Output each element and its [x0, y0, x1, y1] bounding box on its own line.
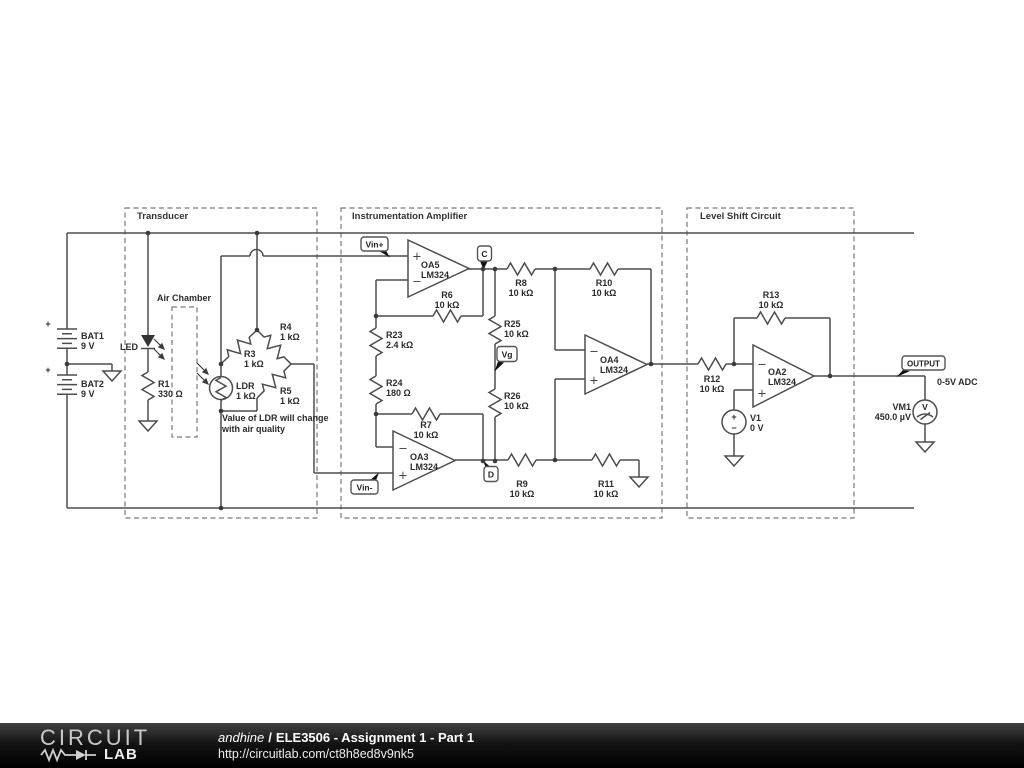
r5-value: 1 kΩ — [280, 396, 300, 406]
output-label: OUTPUT — [907, 360, 940, 369]
ldr-name: LDR — [236, 381, 255, 391]
vm1-value: 450.0 µV — [875, 412, 911, 422]
resistor-r1[interactable]: R1 330 Ω — [142, 372, 183, 400]
node-c-label: C — [481, 249, 487, 259]
v1-name: V1 — [750, 413, 761, 423]
bat1-name: BAT1 — [81, 331, 104, 341]
ground-symbol-vm1 — [916, 442, 934, 452]
r23-value: 2.4 kΩ — [386, 340, 413, 350]
flag-vin-plus[interactable]: Vin+ — [361, 237, 390, 258]
oa2-name: OA2 — [768, 367, 787, 377]
r26-name: R26 — [504, 391, 521, 401]
resistor-r7[interactable]: R7 10 kΩ — [412, 408, 440, 440]
bat2-name: BAT2 — [81, 379, 104, 389]
oa4-value: LM324 — [600, 365, 628, 375]
transducer-title: Transducer — [137, 211, 189, 222]
r3-name: R3 — [244, 349, 256, 359]
bat2-plus-sign: + — [45, 365, 50, 375]
ldr-note-line1: Value of LDR will change — [222, 413, 329, 423]
schematic-canvas: Transducer Instrumentation Amplifier Lev… — [0, 0, 1024, 723]
page-title: ELE3506 - Assignment 1 - Part 1 — [276, 730, 474, 745]
page-url[interactable]: http://circuitlab.com/ct8h8ed8v9nk5 — [218, 747, 474, 761]
author-name: andhine — [218, 730, 264, 745]
r26-value: 10 kΩ — [504, 401, 529, 411]
r23-name: R23 — [386, 330, 403, 340]
oa3-minus-input: − — [398, 441, 408, 455]
r6-name: R6 — [441, 290, 453, 300]
resistor-r11[interactable]: R11 10 kΩ — [592, 454, 620, 499]
oa2-value: LM324 — [768, 377, 796, 387]
r24-value: 180 Ω — [386, 388, 411, 398]
bat1-value: 9 V — [81, 341, 95, 351]
r9-value: 10 kΩ — [510, 489, 535, 499]
r3-value: 1 kΩ — [244, 359, 264, 369]
r4-name: R4 — [280, 322, 292, 332]
resistor-r25[interactable]: R25 10 kΩ — [489, 316, 529, 344]
r10-name: R10 — [596, 278, 613, 288]
resistor-r13[interactable]: R13 10 kΩ — [757, 290, 785, 324]
ldr-note-line2: with air quality — [221, 424, 285, 434]
ground-symbol-r1 — [139, 421, 157, 431]
oa3-plus-input: + — [398, 468, 408, 482]
bat1-plus-sign: + — [45, 319, 50, 329]
r9-name: R9 — [516, 479, 528, 489]
level-shift-title: Level Shift Circuit — [700, 211, 782, 222]
resistor-r24[interactable]: R24 180 Ω — [370, 376, 411, 404]
resistor-r26[interactable]: R26 10 kΩ — [489, 389, 529, 417]
r4-value: 1 kΩ — [280, 332, 300, 342]
resistor-r9[interactable]: R9 10 kΩ — [508, 454, 536, 499]
adc-range-label: 0-5V ADC — [937, 377, 978, 387]
circuitlab-logo: CIRCUIT LAB — [0, 728, 218, 763]
oa5-name: OA5 — [421, 260, 440, 270]
vin-plus-label: Vin+ — [365, 240, 383, 250]
flag-node-c[interactable]: C — [478, 246, 492, 270]
v1-plus-sign: + — [731, 412, 736, 422]
logo-resistor-diode-icon — [40, 747, 102, 763]
r25-name: R25 — [504, 319, 521, 329]
logo-lab-text: LAB — [104, 746, 138, 763]
logo-circuit-text: CIRCUIT — [40, 728, 218, 748]
r24-name: R24 — [386, 378, 403, 388]
r1-name: R1 — [158, 379, 170, 389]
node-d-label: D — [488, 470, 494, 480]
r8-name: R8 — [515, 278, 527, 288]
oa4-minus-input: − — [589, 344, 599, 358]
ground-symbol-v1 — [725, 456, 743, 466]
vin-minus-label: Vin- — [357, 483, 373, 493]
footer-bar: CIRCUIT LAB andhine/ELE3506 - Assignment… — [0, 723, 1024, 768]
resistor-r10[interactable]: R10 10 kΩ — [590, 263, 618, 298]
oa3-name: OA3 — [410, 452, 429, 462]
resistor-r6[interactable]: R6 10 kΩ — [433, 290, 461, 322]
oa5-value: LM324 — [421, 270, 449, 280]
oa4-name: OA4 — [600, 355, 619, 365]
r5-name: R5 — [280, 386, 292, 396]
r12-value: 10 kΩ — [700, 384, 725, 394]
r13-name: R13 — [763, 290, 780, 300]
v1-minus-sign: − — [731, 423, 736, 433]
r12-name: R12 — [704, 374, 721, 384]
r1-value: 330 Ω — [158, 389, 183, 399]
r7-name: R7 — [420, 420, 432, 430]
page-title-line: andhine/ELE3506 - Assignment 1 - Part 1 — [218, 730, 474, 745]
resistor-r12[interactable]: R12 10 kΩ — [698, 358, 726, 394]
flag-vg[interactable]: Vg — [495, 347, 518, 372]
ground-symbol-r11 — [630, 477, 648, 487]
ldr-value: 1 kΩ — [236, 391, 256, 401]
vm1-name: VM1 — [892, 402, 911, 412]
r10-value: 10 kΩ — [592, 288, 617, 298]
r25-value: 10 kΩ — [504, 329, 529, 339]
voltage-source-v1[interactable]: + − V1 0 V — [722, 410, 764, 434]
flag-vin-minus[interactable]: Vin- — [351, 473, 379, 495]
r8-value: 10 kΩ — [509, 288, 534, 298]
bat2-value: 9 V — [81, 389, 95, 399]
air-chamber-label: Air Chamber — [157, 293, 212, 303]
oa2-minus-input: − — [757, 357, 767, 371]
battery-bat2[interactable]: + BAT2 9 V — [45, 365, 103, 399]
r6-value: 10 kΩ — [435, 300, 460, 310]
resistor-r23[interactable]: R23 2.4 kΩ — [370, 328, 413, 356]
opamp-oa5[interactable]: + − OA5 LM324 — [408, 240, 469, 297]
ldr-light-arrows — [197, 363, 209, 385]
oa4-plus-input: + — [589, 373, 599, 387]
r11-name: R11 — [598, 479, 614, 489]
flag-output[interactable]: OUTPUT — [897, 356, 946, 377]
opamp-oa4[interactable]: − + OA4 LM324 — [585, 335, 647, 394]
ground-symbol-battery — [103, 371, 121, 381]
led-d1[interactable]: LED — [120, 335, 165, 360]
oa2-plus-input: + — [757, 386, 767, 400]
oa3-value: LM324 — [410, 462, 438, 472]
battery-bat1[interactable]: + BAT1 9 V — [45, 319, 103, 351]
flag-node-d[interactable]: D — [483, 461, 498, 482]
r11-value: 10 kΩ — [594, 489, 619, 499]
v1-value: 0 V — [750, 423, 764, 433]
resistor-r8[interactable]: R8 10 kΩ — [507, 263, 535, 298]
air-chamber-box — [172, 307, 197, 437]
vg-label: Vg — [502, 350, 513, 360]
r7-value: 10 kΩ — [414, 430, 439, 440]
led-name: LED — [120, 342, 139, 352]
vm1-v-glyph: V — [922, 402, 928, 412]
led-light-arrows — [154, 339, 165, 360]
title-separator: / — [268, 730, 272, 745]
instrumentation-amplifier-title: Instrumentation Amplifier — [352, 211, 468, 222]
voltmeter-vm1[interactable]: V VM1 450.0 µV — [875, 400, 937, 424]
r13-value: 10 kΩ — [759, 300, 784, 310]
opamp-oa2[interactable]: − + OA2 LM324 — [753, 345, 814, 407]
